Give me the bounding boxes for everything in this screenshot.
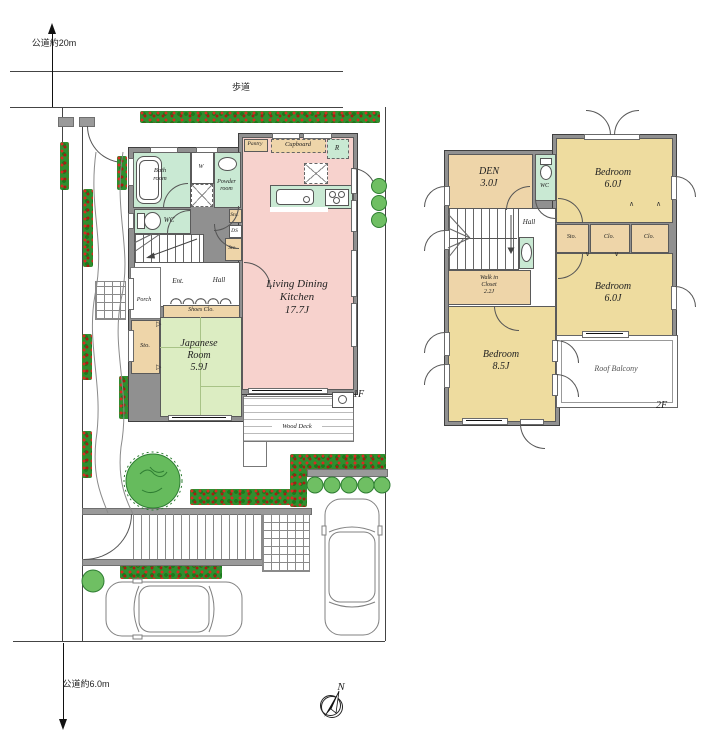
garden-step <box>243 441 267 467</box>
hedge <box>60 142 69 190</box>
driveway-paving <box>133 514 262 559</box>
stairs-2f <box>448 208 519 270</box>
bedroom-85-label: Bedroom8.5J <box>465 349 537 373</box>
tile-paving <box>95 281 126 320</box>
road-edge-top <box>10 71 343 72</box>
window <box>150 147 178 153</box>
roof-balcony-label: Roof Balcony <box>577 364 655 373</box>
casement-arc <box>614 110 639 135</box>
casement-arc <box>424 186 445 207</box>
refrigerator-label: R <box>332 144 342 152</box>
door-arc <box>352 168 376 192</box>
sliding-window <box>168 415 232 421</box>
folding-door-icon: ∧ <box>656 200 661 208</box>
retaining-wall <box>82 559 264 566</box>
storage-label: Sto. <box>226 245 239 251</box>
folding-door-icon: ∨ <box>585 250 590 258</box>
stairs-1f <box>134 234 204 264</box>
window <box>303 133 332 139</box>
porch-label: Porch <box>132 297 156 304</box>
window <box>128 213 134 229</box>
hedge <box>82 431 92 478</box>
washbasin-2f <box>521 243 532 262</box>
hedge <box>83 189 93 267</box>
floorplan-image: 公道約20m 歩道 公道約6.0m <box>0 0 728 741</box>
washer-label: W <box>194 164 208 171</box>
window <box>351 250 357 297</box>
shoes-closet-label: Shoes Clo. <box>177 307 225 314</box>
den-label: DEN3.0J <box>463 166 515 190</box>
wc-label: WC <box>158 216 180 224</box>
road-bottom-label: 公道約6.0m <box>58 679 114 691</box>
tile-paving <box>262 514 310 572</box>
road-top-label: 公道約20m <box>28 38 80 50</box>
powder-label: Powderroom <box>207 179 246 193</box>
bedroom-north-label: Bedroom6.0J <box>577 167 649 191</box>
burner <box>338 191 345 198</box>
window <box>128 158 134 186</box>
window <box>196 147 218 153</box>
window <box>272 133 300 139</box>
sliding-door-icon: ▷ <box>156 320 161 328</box>
sliding-window-sash <box>172 417 226 418</box>
ldk-label: Living DiningKitchen17.7J <box>251 278 343 317</box>
tree-icon <box>124 452 182 510</box>
hall-label-2f: Hall <box>517 218 541 226</box>
arrow-up-icon <box>48 23 56 34</box>
car-icon <box>106 579 242 639</box>
hedge <box>305 454 386 469</box>
door-arc <box>520 424 545 449</box>
porch <box>130 267 161 319</box>
south-boundary <box>13 641 385 642</box>
hedge <box>82 334 92 380</box>
compass-north-label: N <box>336 681 345 693</box>
entrance-folding-door <box>170 292 232 304</box>
casement-arc <box>424 364 445 385</box>
casement-arc <box>424 332 445 353</box>
window-sash <box>466 420 502 421</box>
duct-label: DS <box>229 228 240 234</box>
stairs-landing-line <box>448 238 517 239</box>
closet-label: Clo. <box>640 234 658 241</box>
japanese-room-label: JapaneseRoom5.9J <box>164 338 234 373</box>
storage-label: Sto. <box>228 212 241 218</box>
casement-arc <box>675 176 696 197</box>
garden-path <box>92 152 133 514</box>
floor2-label: 2F <box>656 400 682 412</box>
tatami-line <box>200 386 240 387</box>
living-dining-kitchen <box>242 137 354 390</box>
cupboard-label: Cupboard <box>273 141 323 149</box>
casement-arc <box>586 110 611 135</box>
bedroom-south-label: Bedroom6.0J <box>577 281 649 305</box>
wic-label: Walk inCloset2.2J <box>464 275 514 296</box>
hedge <box>117 156 127 190</box>
storage-label-2f: Sto. <box>562 234 581 241</box>
bathroom-label: Bathroom <box>140 167 180 182</box>
sidewalk-label: 歩道 <box>224 82 258 94</box>
sliding-window <box>248 388 328 394</box>
window-sash <box>586 333 623 334</box>
east-boundary <box>385 107 386 641</box>
gate-post <box>58 117 74 127</box>
driveway-gate-arc <box>84 514 132 560</box>
folding-door-icon: ∨ <box>614 250 619 258</box>
wood-deck-label: Wood Deck <box>272 423 322 431</box>
outdoor-tap-handle <box>338 395 347 404</box>
hall-label: Hall <box>208 276 230 284</box>
storage-label: Sto. <box>136 342 154 350</box>
toilet-tank-2f <box>540 158 552 165</box>
arrow-down-icon <box>59 719 67 730</box>
window <box>128 330 134 362</box>
toilet-bowl-2f <box>540 165 552 180</box>
compass-icon: N <box>321 681 346 718</box>
washbasin <box>218 157 237 171</box>
retaining-wall <box>307 469 388 477</box>
closet-label: Clo. <box>600 234 618 241</box>
window <box>351 303 357 347</box>
sink-drain <box>303 196 310 203</box>
door-opening <box>128 278 134 310</box>
sidewalk-edge <box>10 107 343 108</box>
window <box>351 200 357 232</box>
range-hood <box>304 163 328 184</box>
hedge <box>190 489 297 505</box>
entrance-label: Ent. <box>167 277 189 285</box>
wc-label-2f: WC <box>536 183 553 190</box>
folding-door-icon: ∧ <box>629 200 634 208</box>
floor1-label: 1F <box>353 389 379 401</box>
sliding-window-sash <box>252 390 322 391</box>
counter-edge <box>270 207 328 212</box>
casement-arc <box>675 286 696 307</box>
casement-arc <box>424 230 445 251</box>
sliding-door-icon: ▷ <box>156 363 161 371</box>
hedge <box>140 111 380 123</box>
pantry-label: Pantry <box>244 141 266 147</box>
burner <box>333 197 340 204</box>
car-icon <box>322 499 382 635</box>
